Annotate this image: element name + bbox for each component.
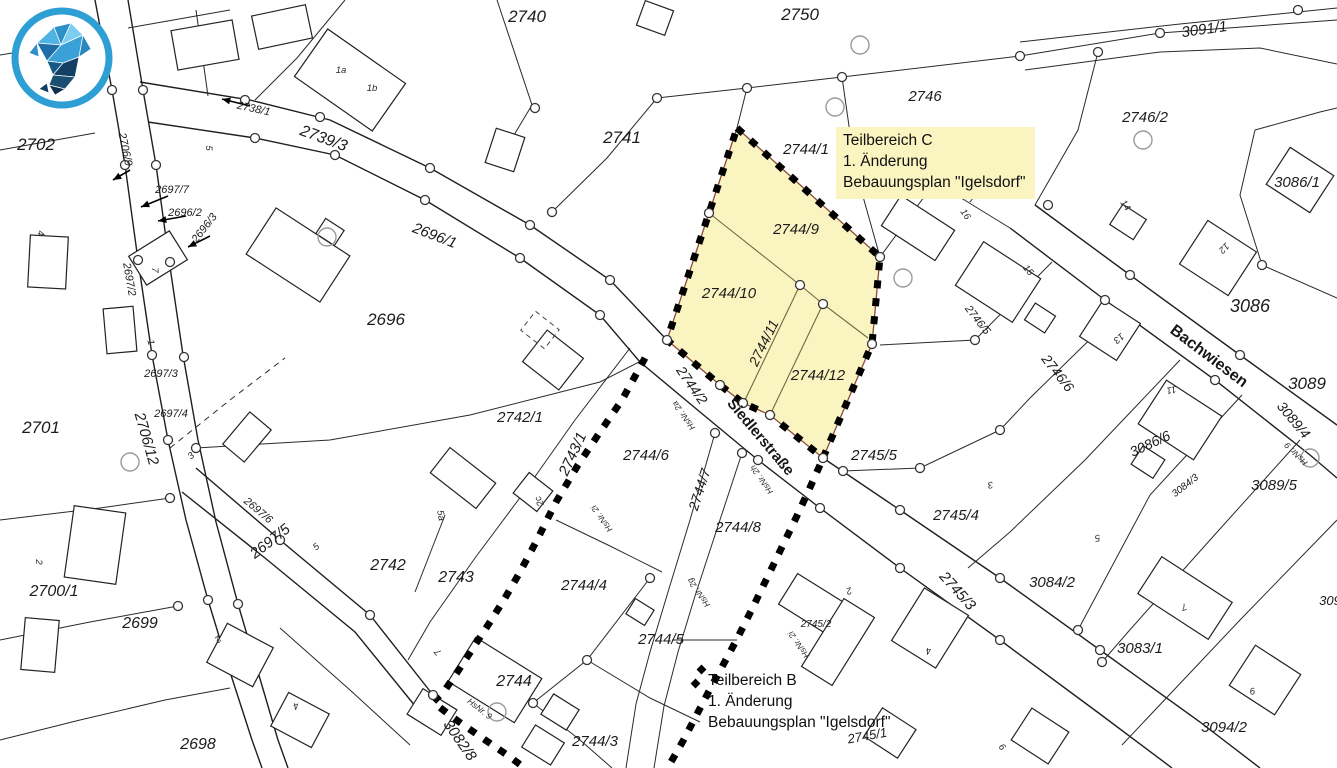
parcel-label-2696: 2696 [366, 310, 405, 329]
parcel-label-2701: 2701 [21, 418, 60, 437]
house-number-label: 5a [434, 509, 447, 521]
survey-point [366, 611, 375, 620]
survey-point [996, 636, 1005, 645]
building-footprint [21, 618, 59, 673]
parcel-label-3086-1: 3086/1 [1274, 174, 1320, 191]
teilbereich-c-label: Teilbereich C 1. Änderung Bebauungsplan … [836, 127, 1035, 199]
survey-point [1016, 52, 1025, 61]
parcel-label-2746: 2746 [907, 88, 942, 105]
teilbereich-b-line2: 1. Änderung [708, 691, 891, 712]
building-footprint [1011, 708, 1069, 764]
parcel-label-3084-2: 3084/2 [1029, 574, 1076, 591]
parcel-boundary-line [1255, 108, 1337, 130]
road-edge-line [182, 492, 420, 712]
parcel-label-2741: 2741 [602, 128, 641, 147]
parcel-label-2738-1: 2738/1 [235, 99, 271, 118]
parcel-boundary-line [657, 20, 1337, 98]
survey-point [429, 691, 438, 700]
parcel-boundary-line [737, 88, 747, 128]
survey-point [1074, 626, 1083, 635]
survey-point [711, 429, 720, 438]
house-number-label: 7 [149, 267, 160, 273]
municipality-logo [8, 4, 116, 117]
house-number-label: 1b [367, 83, 378, 94]
survey-point [996, 574, 1005, 583]
survey-point [868, 340, 877, 349]
parcel-label-2744-8: 2744/8 [714, 519, 762, 536]
survey-point [1236, 351, 1245, 360]
building-footprint [513, 473, 553, 512]
parcel-boundary-line [587, 660, 700, 722]
survey-point [1156, 29, 1165, 38]
survey-point [583, 656, 592, 665]
survey-point [838, 73, 847, 82]
survey-point [164, 436, 173, 445]
survey-point [1211, 376, 1220, 385]
parcel-boundary-line [0, 688, 230, 740]
building-footprint [271, 692, 329, 747]
survey-point-large [121, 453, 139, 471]
house-number-label: 5 [203, 145, 214, 151]
parcel-label-2706-9: 2706/9 [115, 131, 134, 167]
survey-point [529, 699, 538, 708]
parcel-label-3091-1: 3091/1 [1180, 18, 1228, 41]
survey-point [166, 258, 175, 267]
parcel-label-3094-2: 3094/2 [1201, 719, 1248, 736]
cadastral-map-page: 2702274027503091/127462746/23086/1274127… [0, 0, 1337, 768]
building-footprint [28, 235, 69, 289]
survey-point [234, 600, 243, 609]
parcel-label-2746-5: 2746/5 [962, 302, 993, 337]
building-footprint [1229, 645, 1300, 715]
house-number-hsnr-label: HsNr. 2i [588, 503, 614, 535]
survey-point [139, 86, 148, 95]
house-number-hsnr-label: HsNr. 2a [670, 399, 697, 432]
parcel-label-3089-5: 3089/5 [1251, 477, 1298, 494]
building-footprint [523, 330, 584, 390]
parcel-label-2698: 2698 [179, 736, 216, 753]
teilbereich-b-line1: Teilbereich B [708, 670, 891, 691]
parcel-label-2702: 2702 [16, 135, 55, 154]
survey-point [421, 196, 430, 205]
survey-point [743, 84, 752, 93]
house-number-label: 9 [997, 741, 1009, 753]
parcel-label-3084-3: 3084/3 [1170, 472, 1201, 500]
survey-point [1294, 6, 1303, 15]
survey-point [1094, 48, 1103, 57]
house-number-label: 2 [844, 584, 854, 597]
survey-point [606, 276, 615, 285]
house-number-label: 11 [1166, 383, 1178, 396]
parcel-boundary-line [552, 98, 657, 212]
building-footprint [485, 128, 525, 172]
building-footprint [541, 694, 579, 730]
parcel-label-2740: 2740 [507, 7, 546, 26]
building-footprint [252, 5, 313, 50]
house-number-label: 7 [432, 646, 444, 658]
parcel-boundary-line [1262, 265, 1337, 298]
survey-point [1044, 201, 1053, 210]
survey-point [426, 164, 435, 173]
building-footprint [430, 448, 495, 509]
survey-point-large [894, 269, 912, 287]
house-number-label: 1a [336, 65, 347, 76]
survey-point [705, 209, 714, 218]
survey-point [1098, 658, 1107, 667]
parcel-label-2744-3: 2744/3 [571, 733, 619, 750]
building-footprint [171, 20, 239, 70]
house-number-label: 2 [33, 558, 44, 565]
survey-point [180, 353, 189, 362]
survey-point [646, 574, 655, 583]
house-number-label: 3 [986, 479, 994, 491]
parcel-label-2739-3: 2739/3 [297, 122, 350, 155]
building-footprint [522, 725, 565, 765]
parcel-label-2744-4: 2744/4 [560, 577, 607, 594]
survey-point [716, 381, 725, 390]
survey-point [166, 494, 175, 503]
parcel-boundary-line [1025, 48, 1337, 70]
parcel-label-2744-10: 2744/10 [701, 285, 757, 302]
house-number-label: 5 [311, 541, 323, 553]
survey-point [548, 208, 557, 217]
survey-point [663, 336, 672, 345]
survey-point [204, 596, 213, 605]
survey-point [971, 336, 980, 345]
parcel-label-2743: 2743 [437, 569, 474, 586]
parcel-label-2697-7: 2697/7 [154, 184, 190, 196]
survey-point [148, 351, 157, 360]
survey-point [819, 454, 828, 463]
survey-point [531, 104, 540, 113]
survey-point [251, 134, 260, 143]
parcel-label-2742: 2742 [369, 557, 406, 574]
parcel-boundary-line [533, 578, 650, 703]
parcel-label-2744-5: 2744/5 [637, 631, 685, 648]
parcel-label-2697-4: 2697/4 [153, 408, 188, 420]
house-number-hsnr-label: HsNr. 2i [785, 629, 811, 661]
teilbereich-b-line3: Bebauungsplan "Igelsdorf" [708, 712, 891, 733]
survey-point [316, 113, 325, 122]
parcel-label-2742-1: 2742/1 [496, 409, 543, 426]
parcel-label-2744-9: 2744/9 [772, 221, 820, 238]
house-number-label: 5 [1093, 532, 1101, 544]
house-number-hsnr-label: HsNr. 2h [748, 463, 775, 496]
parcel-label-2744-1: 2744/1 [782, 141, 829, 158]
survey-point [816, 504, 825, 513]
house-number-label: 16 [958, 207, 973, 223]
parcel-label-2745-2: 2745/2 [800, 619, 832, 630]
survey-point [916, 464, 925, 473]
survey-point [192, 444, 201, 453]
label-pointer-arrowhead [158, 216, 167, 223]
parcel-label-2699: 2699 [121, 615, 158, 632]
building-footprint [246, 208, 350, 302]
building-footprint [1080, 300, 1141, 361]
teilbereich-c-line2: 1. Änderung [843, 151, 1026, 172]
teilbereich-c-line3: Bebauungsplan "Igelsdorf" [843, 172, 1026, 193]
survey-point [1101, 296, 1110, 305]
house-number-label: 4 [35, 230, 46, 235]
parcel-label-2697-3: 2697/3 [143, 368, 179, 380]
survey-point [766, 411, 775, 420]
parcel-label-2745-4: 2745/4 [932, 507, 979, 524]
building-footprint [636, 1, 673, 36]
survey-point [134, 256, 143, 265]
road-edge-line [140, 82, 665, 338]
survey-point [1096, 646, 1105, 655]
parcel-label-3086: 3086 [1230, 296, 1271, 316]
survey-point [819, 300, 828, 309]
label-pointer-arrowhead [141, 201, 150, 207]
survey-point [152, 161, 161, 170]
teilbereich-c-line1: Teilbereich C [843, 130, 1026, 151]
parcel-boundary-line [1020, 8, 1337, 42]
building-footprint [626, 599, 654, 626]
survey-point [516, 254, 525, 263]
parcel-label-2744-12: 2744/12 [790, 367, 846, 384]
parcel-boundary-line [1122, 520, 1337, 745]
parcel-label-3083-1: 3083/1 [1117, 640, 1163, 657]
survey-point-large [826, 98, 844, 116]
logo-emblem-icon [8, 4, 116, 112]
parcel-boundary-line [1035, 52, 1098, 205]
survey-point [1126, 271, 1135, 280]
parcel-label-2697-5: 2697/5 [246, 520, 294, 563]
parcel-label-2696-2: 2696/2 [167, 207, 202, 219]
building-footprint [223, 412, 271, 462]
survey-point-large [1134, 131, 1152, 149]
house-number-hsnr-label: HsNr. 2g [685, 576, 712, 609]
parcel-label-2696-1: 2696/1 [409, 219, 459, 252]
survey-point [526, 221, 535, 230]
parcel-label-3089: 3089 [1288, 374, 1326, 393]
teilbereich-b-label: Teilbereich B 1. Änderung Bebauungsplan … [708, 670, 891, 733]
parcel-label-2746-2: 2746/2 [1121, 109, 1169, 126]
survey-point [896, 564, 905, 573]
parcel-label-2744-6: 2744/6 [622, 447, 670, 464]
parcel-label-2744-7: 2744/7 [685, 465, 714, 513]
survey-point [174, 602, 183, 611]
survey-point [738, 449, 747, 458]
building-footprint [1024, 303, 1055, 333]
building-footprint [1138, 557, 1232, 640]
survey-point [653, 94, 662, 103]
survey-point [796, 281, 805, 290]
parcel-label-2750: 2750 [780, 5, 819, 24]
survey-point-large [851, 36, 869, 54]
building-footprint [103, 306, 137, 353]
parcel-label-2744: 2744 [495, 673, 532, 690]
survey-point [839, 467, 848, 476]
building-footprint [64, 506, 126, 585]
survey-point [596, 311, 605, 320]
parcel-label-2745-5: 2745/5 [850, 447, 898, 464]
building-footprint [1180, 220, 1257, 295]
parcel-label-2700-1: 2700/1 [29, 583, 79, 600]
survey-point [996, 426, 1005, 435]
survey-point [876, 253, 885, 262]
survey-point [896, 506, 905, 515]
map-canvas[interactable]: 2702274027503091/127462746/23086/1274127… [0, 0, 1337, 768]
survey-point [1258, 261, 1267, 270]
survey-point [754, 456, 763, 465]
parcel-label-309: 309 [1319, 593, 1337, 608]
